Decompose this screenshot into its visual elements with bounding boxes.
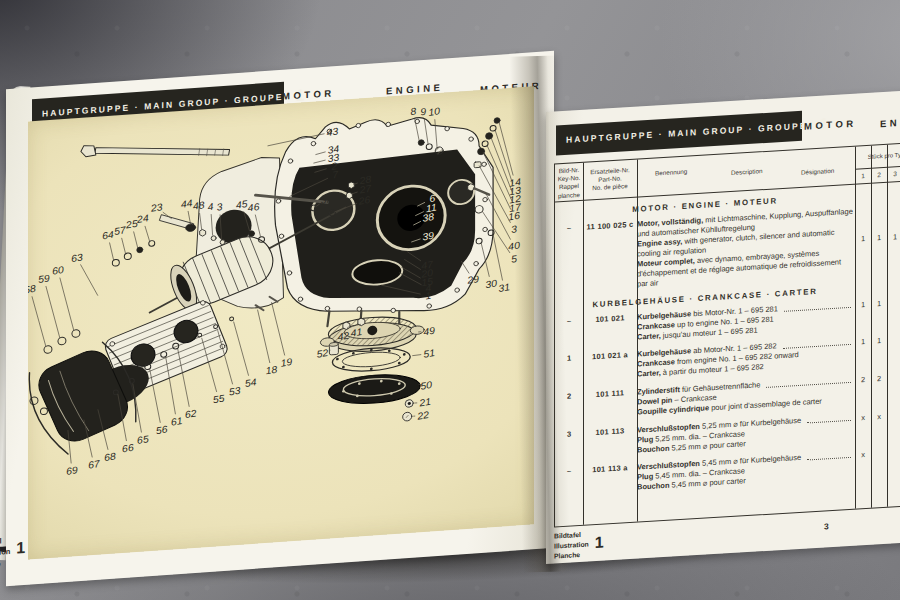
callout-leader xyxy=(495,129,513,186)
callout-29: 29 xyxy=(466,273,480,286)
description: Kurbelgehäuse ab Motor-Nr. 1 – 695 282Cr… xyxy=(637,337,855,380)
qty-col-header: 1 xyxy=(855,172,871,181)
main-group-bar-right: HAUPTGRUPPE · MAIN GROUP · GROUPE 1 xyxy=(556,111,802,156)
qty-value xyxy=(871,449,887,450)
callout-26: 26 xyxy=(357,194,371,207)
callout-leader xyxy=(145,226,150,242)
callout-32: 32 xyxy=(320,193,333,205)
callout-5: 5 xyxy=(511,253,518,264)
exploded-engine-diagram: 4334332789102344484345462425576463605958… xyxy=(28,86,534,559)
callout-54: 54 xyxy=(244,376,257,388)
qty-value: 1 xyxy=(871,299,887,310)
callout-3: 3 xyxy=(511,223,518,234)
callout-68: 68 xyxy=(103,451,116,463)
desc-header-en: Description xyxy=(731,167,763,177)
heading-motor: MOTOR xyxy=(282,87,335,102)
key-number: – xyxy=(555,316,583,347)
qty-value xyxy=(887,335,900,336)
callout-40: 40 xyxy=(508,240,521,252)
callout-leader xyxy=(412,355,421,356)
callout-leader xyxy=(122,238,126,255)
qty-header-rule xyxy=(855,165,900,170)
caption-line: Planche xyxy=(0,557,10,571)
callout-57: 57 xyxy=(113,224,126,236)
callout-63: 63 xyxy=(71,252,84,264)
callout-27: 27 xyxy=(358,183,372,196)
callout-leader xyxy=(32,295,46,347)
plate-caption-right: Bildtafel Illustration Planche 1 xyxy=(554,529,604,563)
callout-48: 48 xyxy=(192,199,205,211)
callout-leader xyxy=(272,301,285,356)
qty-value: 1 xyxy=(855,299,871,310)
qty-value: 1 xyxy=(887,232,900,243)
callout-31: 31 xyxy=(498,281,511,293)
qty-value xyxy=(887,411,900,412)
caption-line: Planche xyxy=(554,550,589,562)
qty-value: 2 xyxy=(871,374,887,385)
callout-43: 43 xyxy=(326,126,339,138)
callout-16: 16 xyxy=(508,210,521,222)
heading-engine: ENGINE xyxy=(880,115,900,129)
callout-65: 65 xyxy=(136,433,149,445)
callout-61: 61 xyxy=(170,415,183,427)
qty-value: 1 xyxy=(855,337,871,348)
qty-value xyxy=(887,373,900,374)
callout-41: 41 xyxy=(350,326,363,338)
callout-53: 53 xyxy=(228,385,241,397)
description: Verschlußstopfen 5,25 mm ⌀ für Kurbelgeh… xyxy=(637,412,855,455)
callout-8: 8 xyxy=(410,106,417,117)
qty-value: x xyxy=(871,412,887,423)
callout-22: 22 xyxy=(416,409,430,422)
table-body: MOTOR · ENGINE · MOTEUR–11 100 025 cMoto… xyxy=(555,181,900,527)
part-number: 101 021 xyxy=(583,312,637,345)
part-number: 101 113 xyxy=(583,425,637,458)
part-number: 101 111 xyxy=(583,388,637,421)
key-number: – xyxy=(555,466,583,497)
callout-69: 69 xyxy=(66,464,79,476)
callout-leader xyxy=(110,242,114,261)
key-number: 3 xyxy=(555,429,583,460)
callout-leader xyxy=(80,263,97,297)
description: Kurbelgehäuse bis Motor-Nr. 1 – 695 281C… xyxy=(637,299,855,342)
callout-66: 66 xyxy=(121,442,134,454)
right-page: HAUPTGRUPPE · MAIN GROUP · GROUPE 1 MOTO… xyxy=(546,90,900,564)
qty-value: 1 xyxy=(871,336,887,347)
callout-58: 58 xyxy=(28,283,37,295)
photo-scene: HAUPTGRUPPE · MAIN GROUP · GROUPE 1 MOTO… xyxy=(0,0,900,600)
callout-leader xyxy=(134,231,138,248)
callout-56: 56 xyxy=(155,424,168,436)
desc-header-fr: Désignation xyxy=(801,167,834,177)
callout-leader xyxy=(258,309,270,364)
callout-46: 46 xyxy=(247,201,260,213)
main-group-label: HAUPTGRUPPE · MAIN GROUP · GROUPE xyxy=(566,120,808,144)
qty-group-header: Stück pro Typ xyxy=(855,151,900,162)
key-number: 2 xyxy=(555,391,583,422)
callout-18: 18 xyxy=(265,364,278,376)
qty-value: 2 xyxy=(855,375,871,386)
callout-10: 10 xyxy=(428,105,441,117)
callout-55: 55 xyxy=(212,393,225,405)
desc-header-de: Benennung xyxy=(655,168,687,178)
callout-59: 59 xyxy=(38,273,51,285)
callout-50: 50 xyxy=(420,379,433,391)
qty-value xyxy=(887,448,900,449)
plate-number: 1 xyxy=(16,539,25,568)
callout-62: 62 xyxy=(184,408,197,420)
callout-64: 64 xyxy=(101,229,114,241)
callout-leader xyxy=(60,277,74,332)
callout-38: 38 xyxy=(422,211,435,223)
heading-motor: MOTOR xyxy=(804,118,857,132)
key-column-header: Bild-Nr. Key-No. Rappel planche xyxy=(555,166,583,200)
callout-44: 44 xyxy=(180,197,193,209)
callout-25: 25 xyxy=(124,218,138,231)
callout-60: 60 xyxy=(52,264,65,276)
callout-leader xyxy=(493,234,502,281)
qty-value xyxy=(887,298,900,299)
qty-value: x xyxy=(855,413,871,424)
qty-value: x xyxy=(855,450,871,461)
description: Zylinderstift für GehäusetrennflächeDowe… xyxy=(637,375,855,418)
callout-52: 52 xyxy=(316,347,329,359)
qty-value: 1 xyxy=(855,234,871,245)
parts-table: Bild-Nr. Key-No. Rappel planche Ersatzte… xyxy=(554,142,900,528)
qty-col-header: 2 xyxy=(871,171,887,180)
callout-1: 1 xyxy=(425,290,432,301)
callout-51: 51 xyxy=(423,347,436,359)
callout-67: 67 xyxy=(87,458,100,470)
callout-21: 21 xyxy=(418,396,432,409)
description: Verschlußstopfen 5,45 mm ⌀ für Kurbelgeh… xyxy=(637,450,855,493)
callout-30: 30 xyxy=(485,278,498,290)
callout-39: 39 xyxy=(422,230,435,242)
description: Motor, vollständig, mit Lichtmaschine, K… xyxy=(637,207,855,289)
part-number: 11 100 025 c xyxy=(583,220,637,292)
qty-col-header: 3 xyxy=(887,170,900,179)
table-row: –11 100 025 cMotor, vollständig, mit Lic… xyxy=(555,203,900,294)
callout-9: 9 xyxy=(420,106,427,117)
part-column-header: Ersatzteile-Nr. Part-No. No. de pièce xyxy=(583,166,637,194)
callout-19: 19 xyxy=(280,356,293,368)
key-number: – xyxy=(555,223,583,294)
illustration-plate: 4334332789102344484345462425576463605958… xyxy=(28,86,534,559)
key-number: 1 xyxy=(555,353,583,384)
plate-number: 1 xyxy=(595,534,604,560)
callout-23: 23 xyxy=(149,201,163,214)
callout-49: 49 xyxy=(423,325,436,337)
page-number: 3 xyxy=(824,521,829,531)
left-page: HAUPTGRUPPE · MAIN GROUP · GROUPE 1 MOTO… xyxy=(6,51,554,586)
plate-caption-left: Bildtafel Illustration Planche 1 xyxy=(0,534,25,571)
part-number: 101 021 a xyxy=(583,350,637,383)
qty-value: 1 xyxy=(871,233,887,244)
callout-leader xyxy=(46,285,60,339)
callout-leader xyxy=(234,321,249,377)
part-number: 101 113 a xyxy=(583,463,637,496)
callout-42: 42 xyxy=(337,330,350,342)
